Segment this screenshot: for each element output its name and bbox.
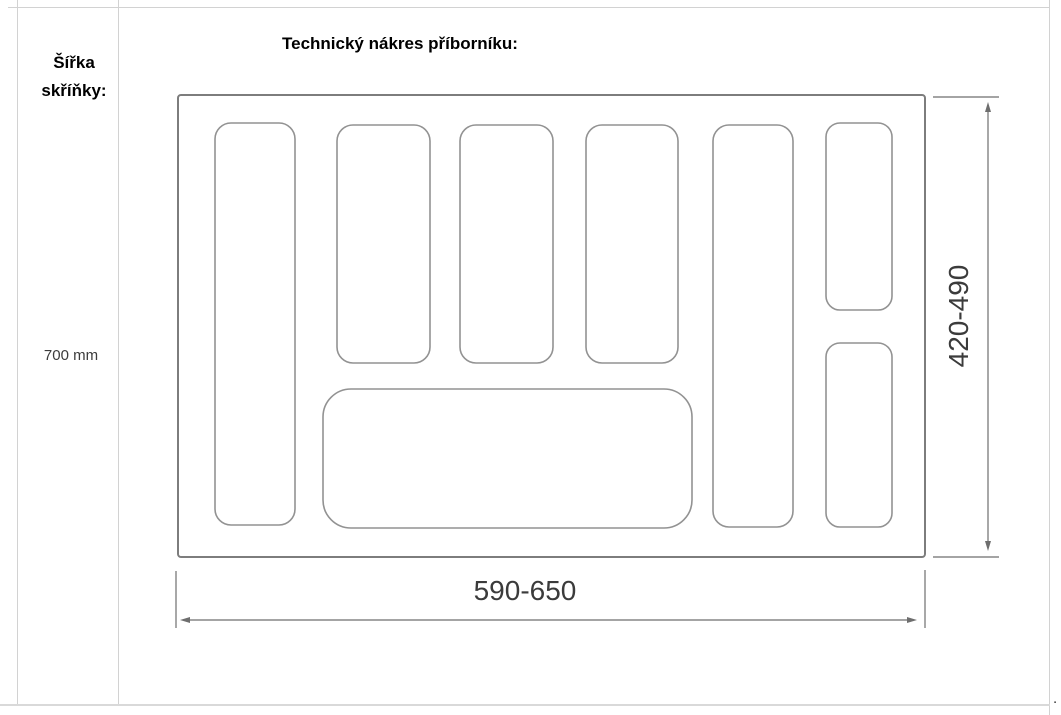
page: Šířka skříňky: 700 mm Technický nákres p… [0,0,1061,715]
height-dimension-arrow-up [985,102,991,112]
width-dimension: 590-650 [176,570,925,628]
height-dimension-label: 420-490 [943,265,974,368]
tray-outline [178,95,925,557]
width-dimension-label: 590-650 [474,575,577,606]
compartment-3 [460,125,553,363]
compartment-top-right [826,123,892,310]
compartment-bottom-right [826,343,892,527]
compartment-bottom-wide [323,389,692,528]
compartment-2 [337,125,430,363]
height-dimension-arrow-down [985,541,991,551]
compartment-5-tall [713,125,793,527]
compartment-4 [586,125,678,363]
trailing-period: . [1053,690,1057,707]
cutlery-tray-technical-drawing: 420-490 590-650 [0,0,1061,715]
width-dimension-arrow-right [907,617,917,623]
width-dimension-arrow-left [180,617,190,623]
compartment-left-tall [215,123,295,525]
height-dimension: 420-490 [933,97,999,557]
